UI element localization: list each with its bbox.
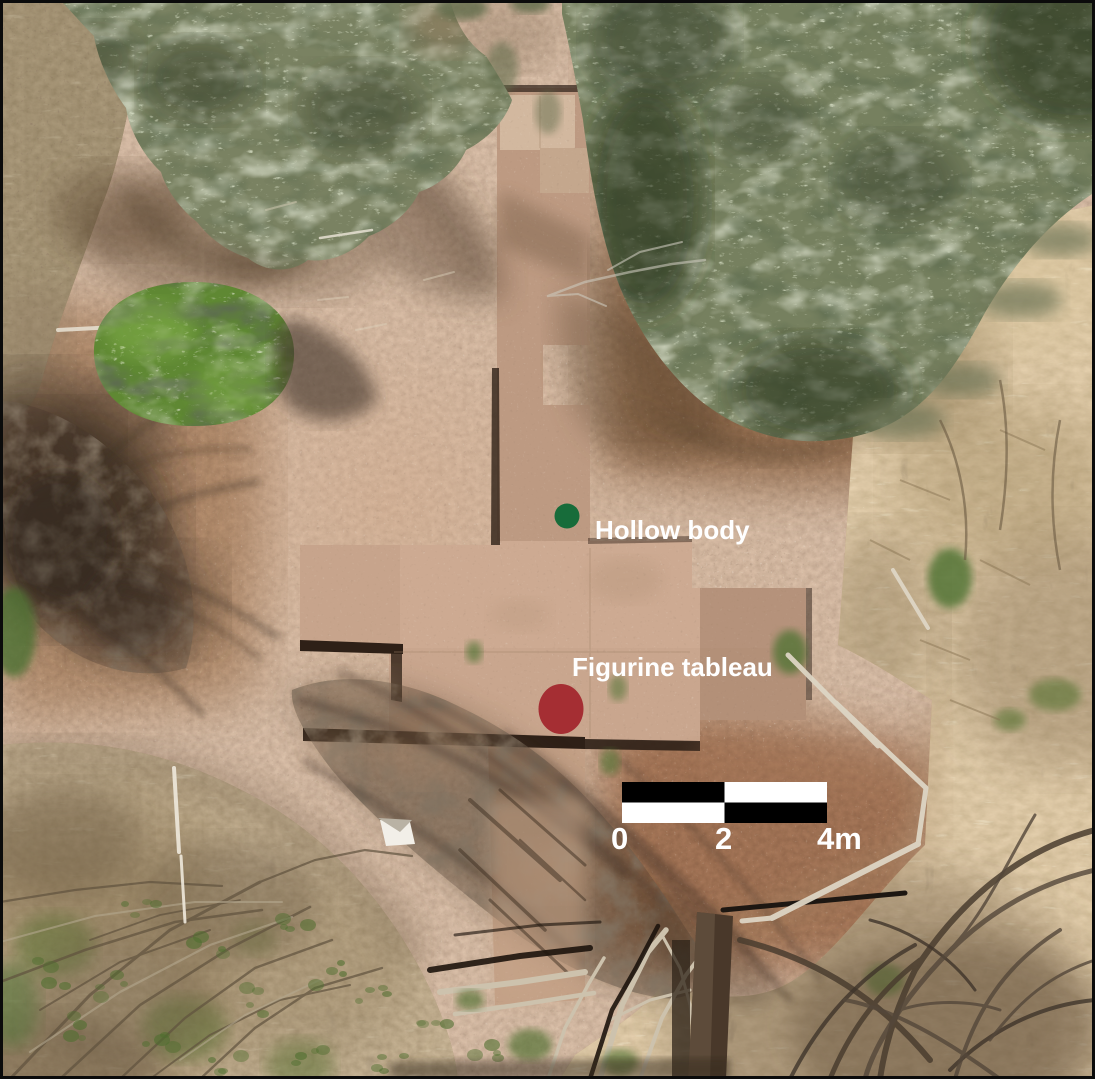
svg-text:Hollow body: Hollow body [595,515,750,545]
svg-text:2: 2 [715,821,732,856]
svg-text:Figurine tableau: Figurine tableau [572,652,773,682]
svg-text:4m: 4m [817,821,862,856]
svg-text:0: 0 [611,821,628,856]
